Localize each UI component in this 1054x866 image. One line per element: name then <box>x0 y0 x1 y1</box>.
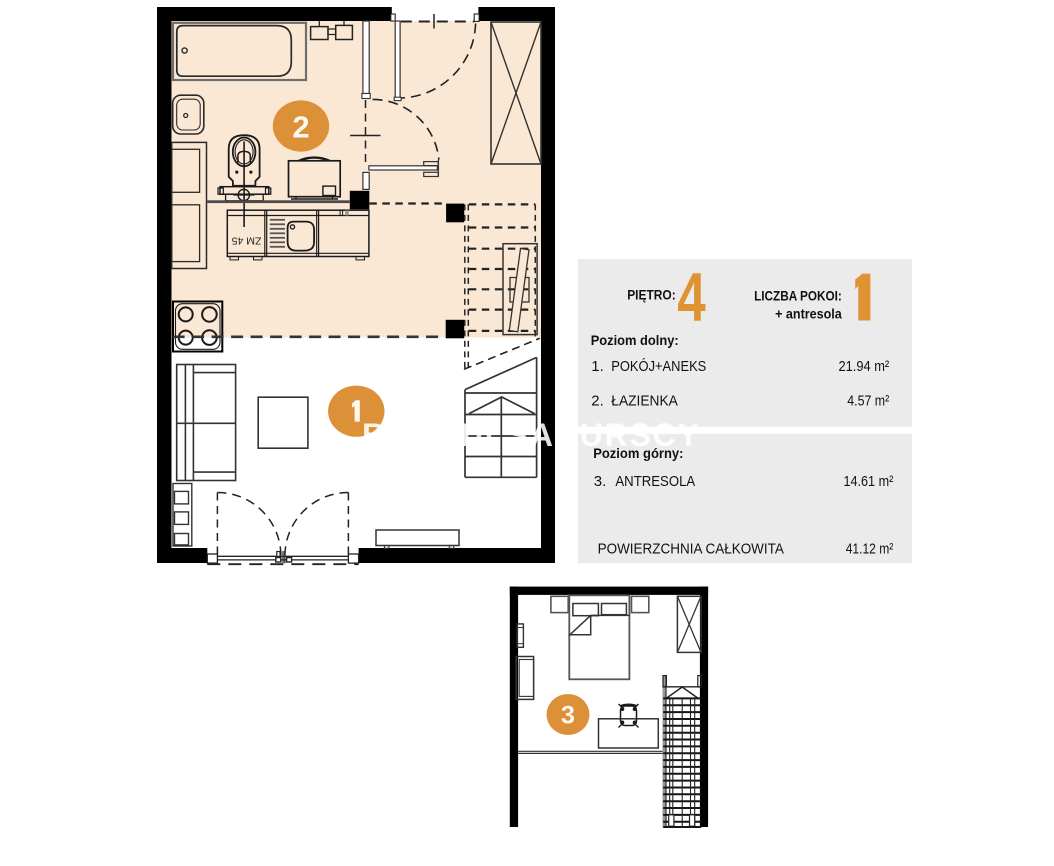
svg-text:3.: 3. <box>594 473 607 490</box>
svg-text:3: 3 <box>561 702 575 730</box>
svg-text:41.12 m²: 41.12 m² <box>846 540 894 557</box>
svg-text:4.57 m²: 4.57 m² <box>847 393 889 410</box>
svg-text:+ antresola: + antresola <box>775 307 842 322</box>
svg-text:21.94 m²: 21.94 m² <box>839 358 890 375</box>
svg-text:POKÓJ+ANEKS: POKÓJ+ANEKS <box>611 358 706 375</box>
svg-text:14.61 m²: 14.61 m² <box>844 473 894 490</box>
svg-text:Poziom dolny:: Poziom dolny: <box>591 333 679 348</box>
svg-text:LICZBA POKOI:: LICZBA POKOI: <box>754 289 842 304</box>
svg-text:POWIERZCHNIA CAŁKOWITA: POWIERZCHNIA CAŁKOWITA <box>598 540 784 557</box>
svg-text:PIĘTRO:: PIĘTRO: <box>627 288 676 303</box>
svg-text:4: 4 <box>677 258 706 335</box>
svg-text:Poziom górny:: Poziom górny: <box>593 446 683 461</box>
svg-text:ŁAZIENKA: ŁAZIENKA <box>611 393 678 410</box>
svg-text:ZM 45: ZM 45 <box>231 235 261 247</box>
svg-text:1.: 1. <box>591 358 604 375</box>
svg-text:2: 2 <box>292 109 309 144</box>
svg-text:2.: 2. <box>591 393 604 410</box>
svg-text:ANTRESOLA: ANTRESOLA <box>615 473 695 490</box>
